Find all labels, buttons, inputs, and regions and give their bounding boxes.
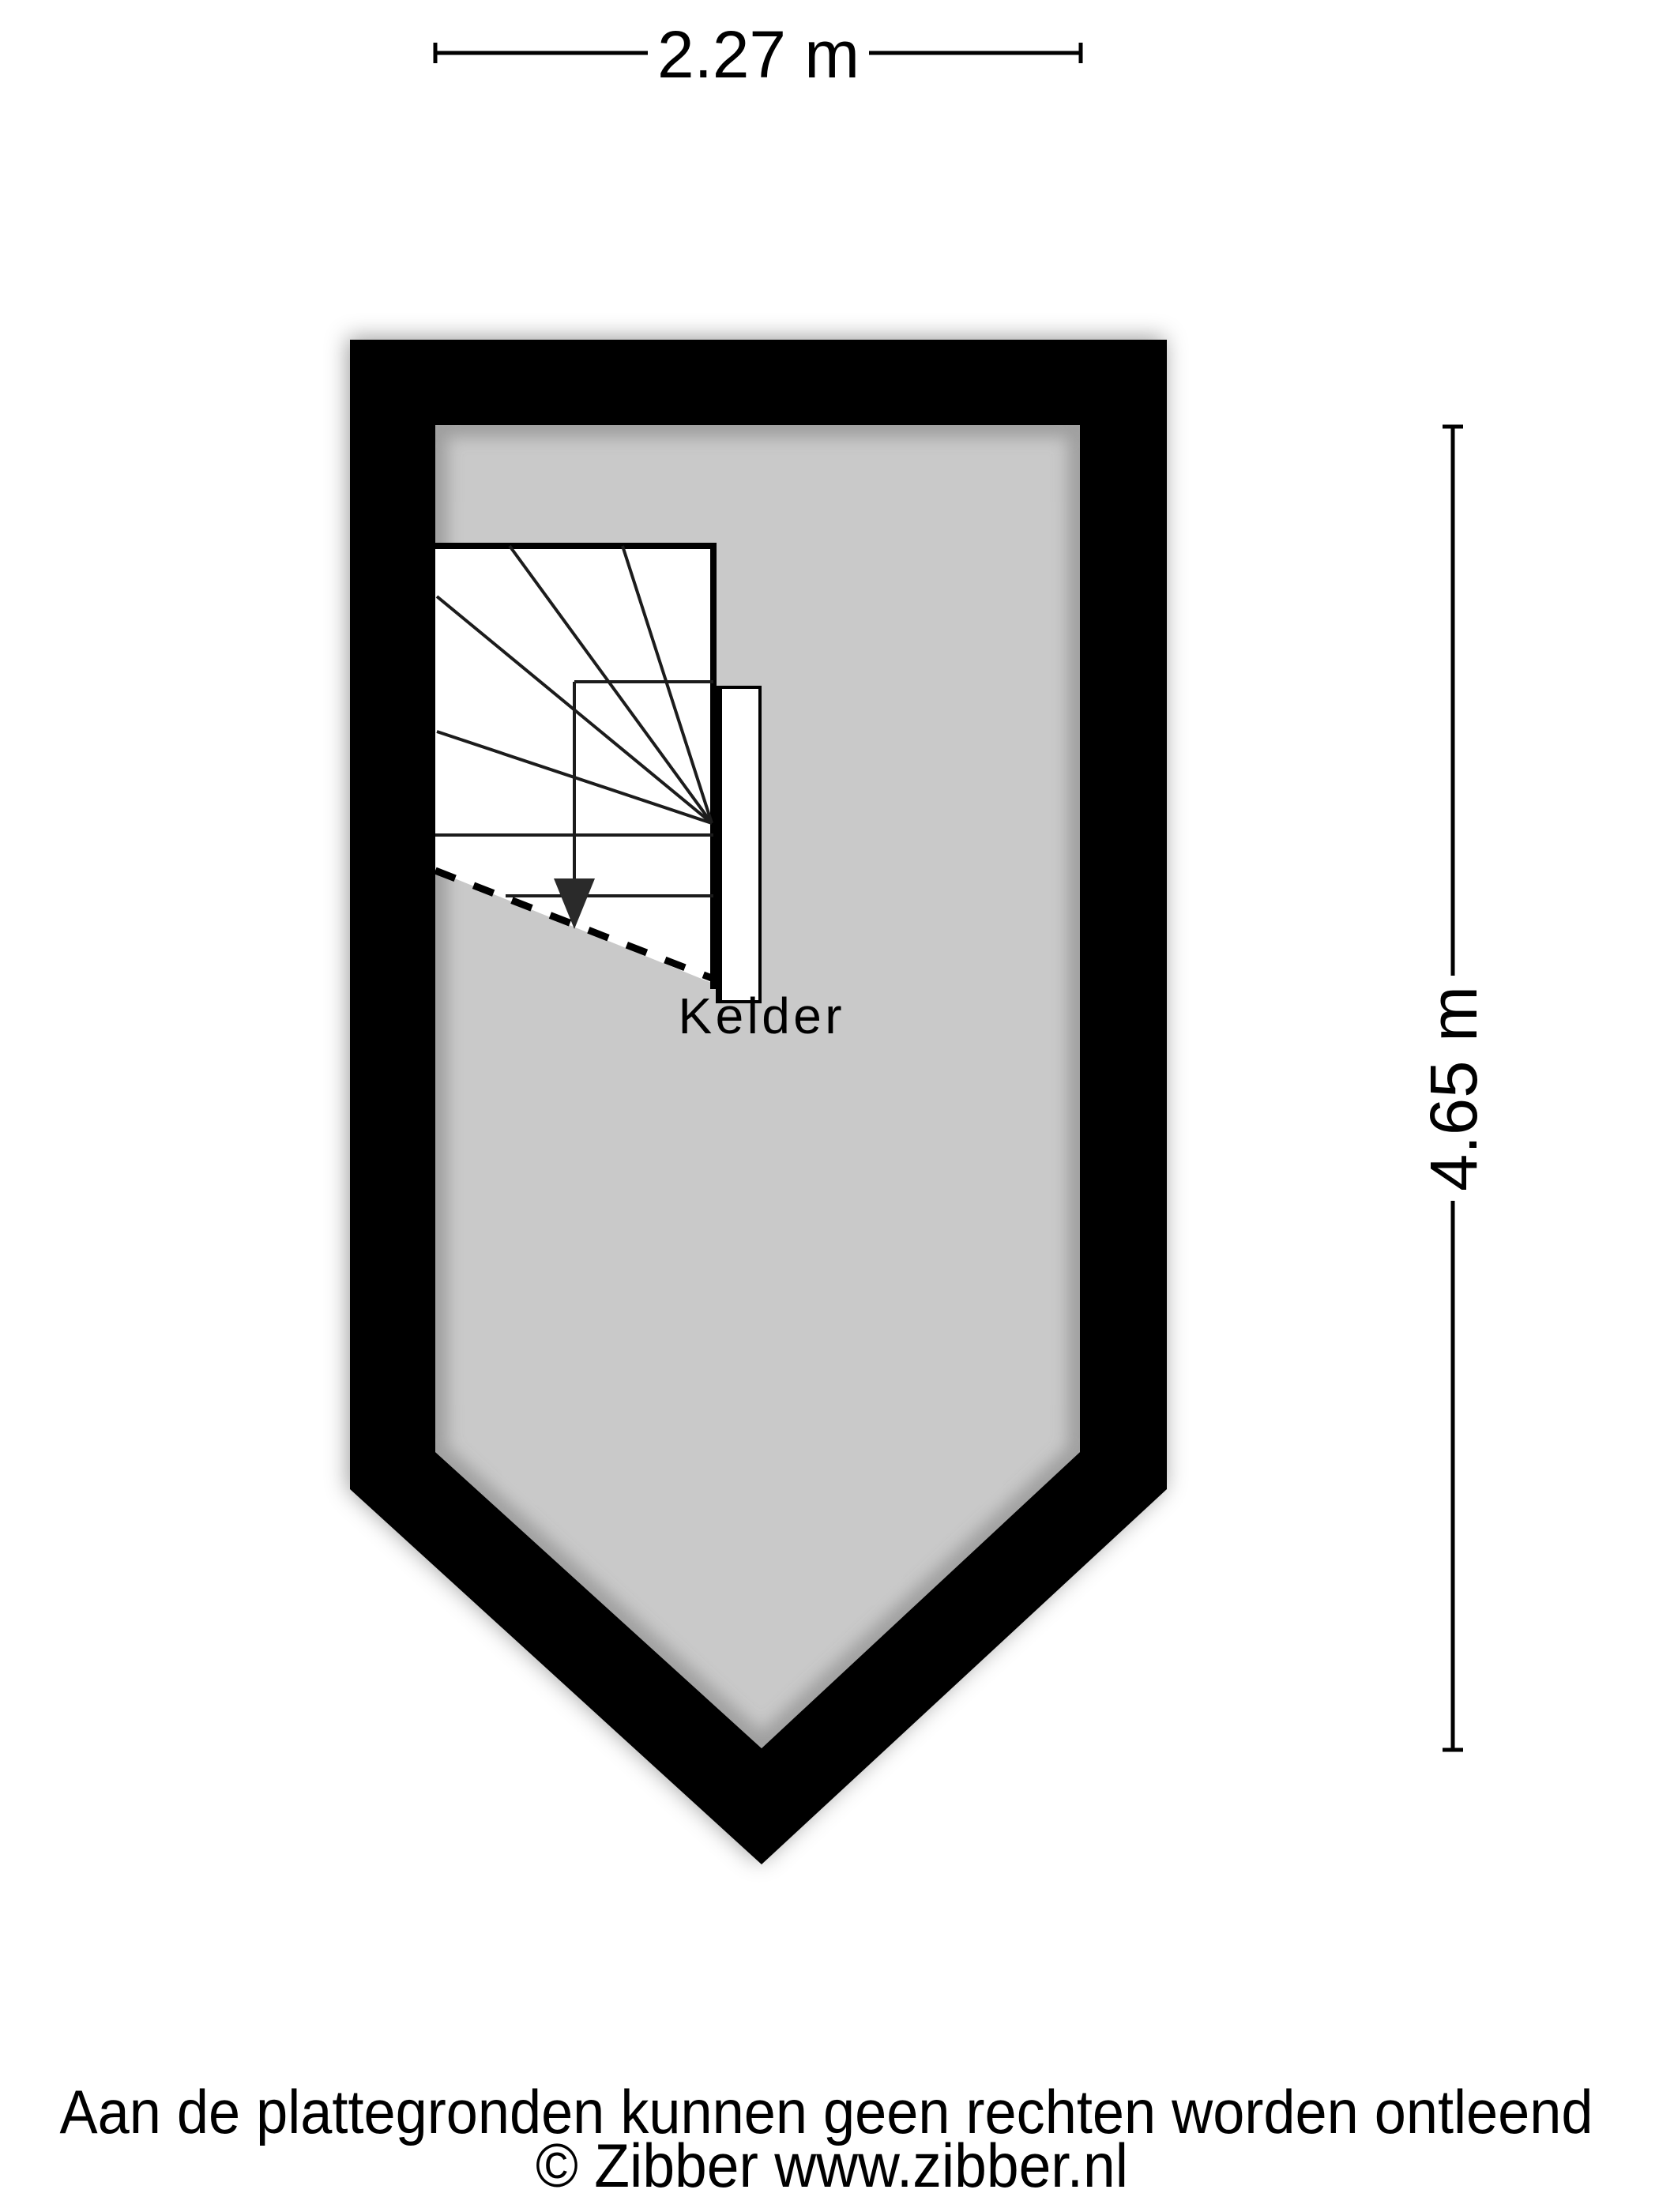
height-dimension-label: 4.65 m bbox=[1416, 986, 1491, 1191]
floor-plan-canvas: Kelder 2.27 m 4.65 m Aan de plattegronde… bbox=[0, 0, 1659, 2212]
copyright-text: © Zibber www.zibber.nl bbox=[536, 2131, 1128, 2200]
width-dimension-label: 2.27 m bbox=[657, 17, 860, 92]
stair-side-rail bbox=[717, 687, 760, 1002]
